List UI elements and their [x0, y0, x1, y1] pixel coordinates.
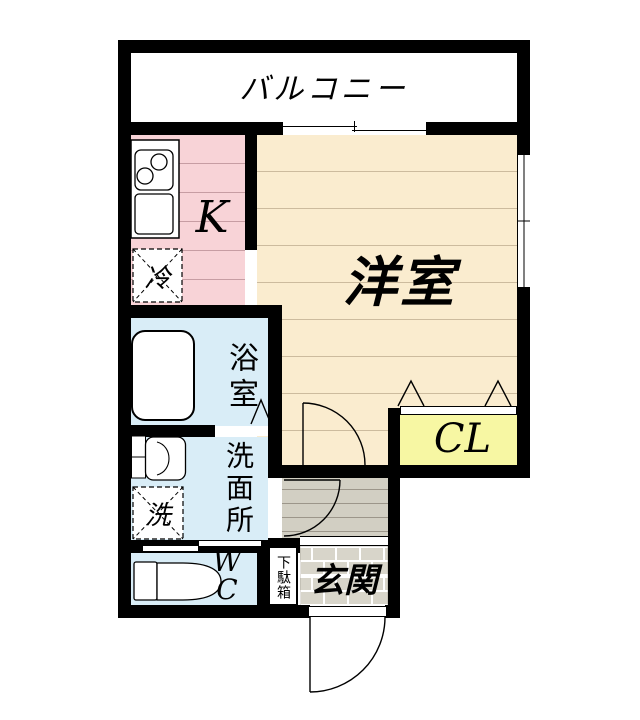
entrance-right-wall — [388, 478, 400, 618]
bath-block-right-wall — [268, 305, 282, 465]
balcony-top-wall — [118, 40, 530, 53]
washroom-label: 洗面所 — [219, 436, 257, 542]
refrigerator-label: 冷 — [135, 261, 180, 291]
balcony-right-wall — [517, 40, 530, 135]
balcony-window — [283, 122, 426, 135]
kitchen-label: K — [182, 190, 242, 244]
unit-bottom-wall — [118, 605, 310, 618]
kitchen-right-wall — [245, 135, 257, 250]
washroom-hall-opening — [268, 478, 282, 538]
toilet-label: WC — [208, 548, 246, 604]
entrance-door-swing-icon — [310, 617, 385, 692]
side-window — [518, 155, 530, 287]
balcony-left-wall — [118, 40, 131, 135]
western-room-bottom-wall — [268, 465, 530, 478]
kitchen-passage-opening — [245, 250, 257, 305]
entrance-step-edge — [300, 536, 388, 546]
entrance-threshold — [308, 606, 387, 617]
balcony-label: バルコニー — [131, 60, 517, 112]
closet-label: CL — [420, 414, 505, 464]
floor-plan: バルコニー K 洋室 浴室 洗面所 WC CL 玄関 冷 洗 下駄箱 — [0, 0, 640, 720]
bathroom-bottom-wall — [118, 425, 215, 437]
bathroom-label: 浴室 — [221, 334, 259, 422]
bathroom-door-opening — [215, 426, 268, 436]
entrance-label: 玄関 — [300, 548, 388, 606]
washing-machine-label: 洗 — [135, 498, 181, 528]
shoe-cabinet-label: 下駄箱 — [270, 550, 296, 604]
kitchen-bottom-wall — [118, 305, 282, 318]
washroom-sliding-door — [142, 545, 199, 552]
western-room-label: 洋室 — [300, 242, 500, 312]
